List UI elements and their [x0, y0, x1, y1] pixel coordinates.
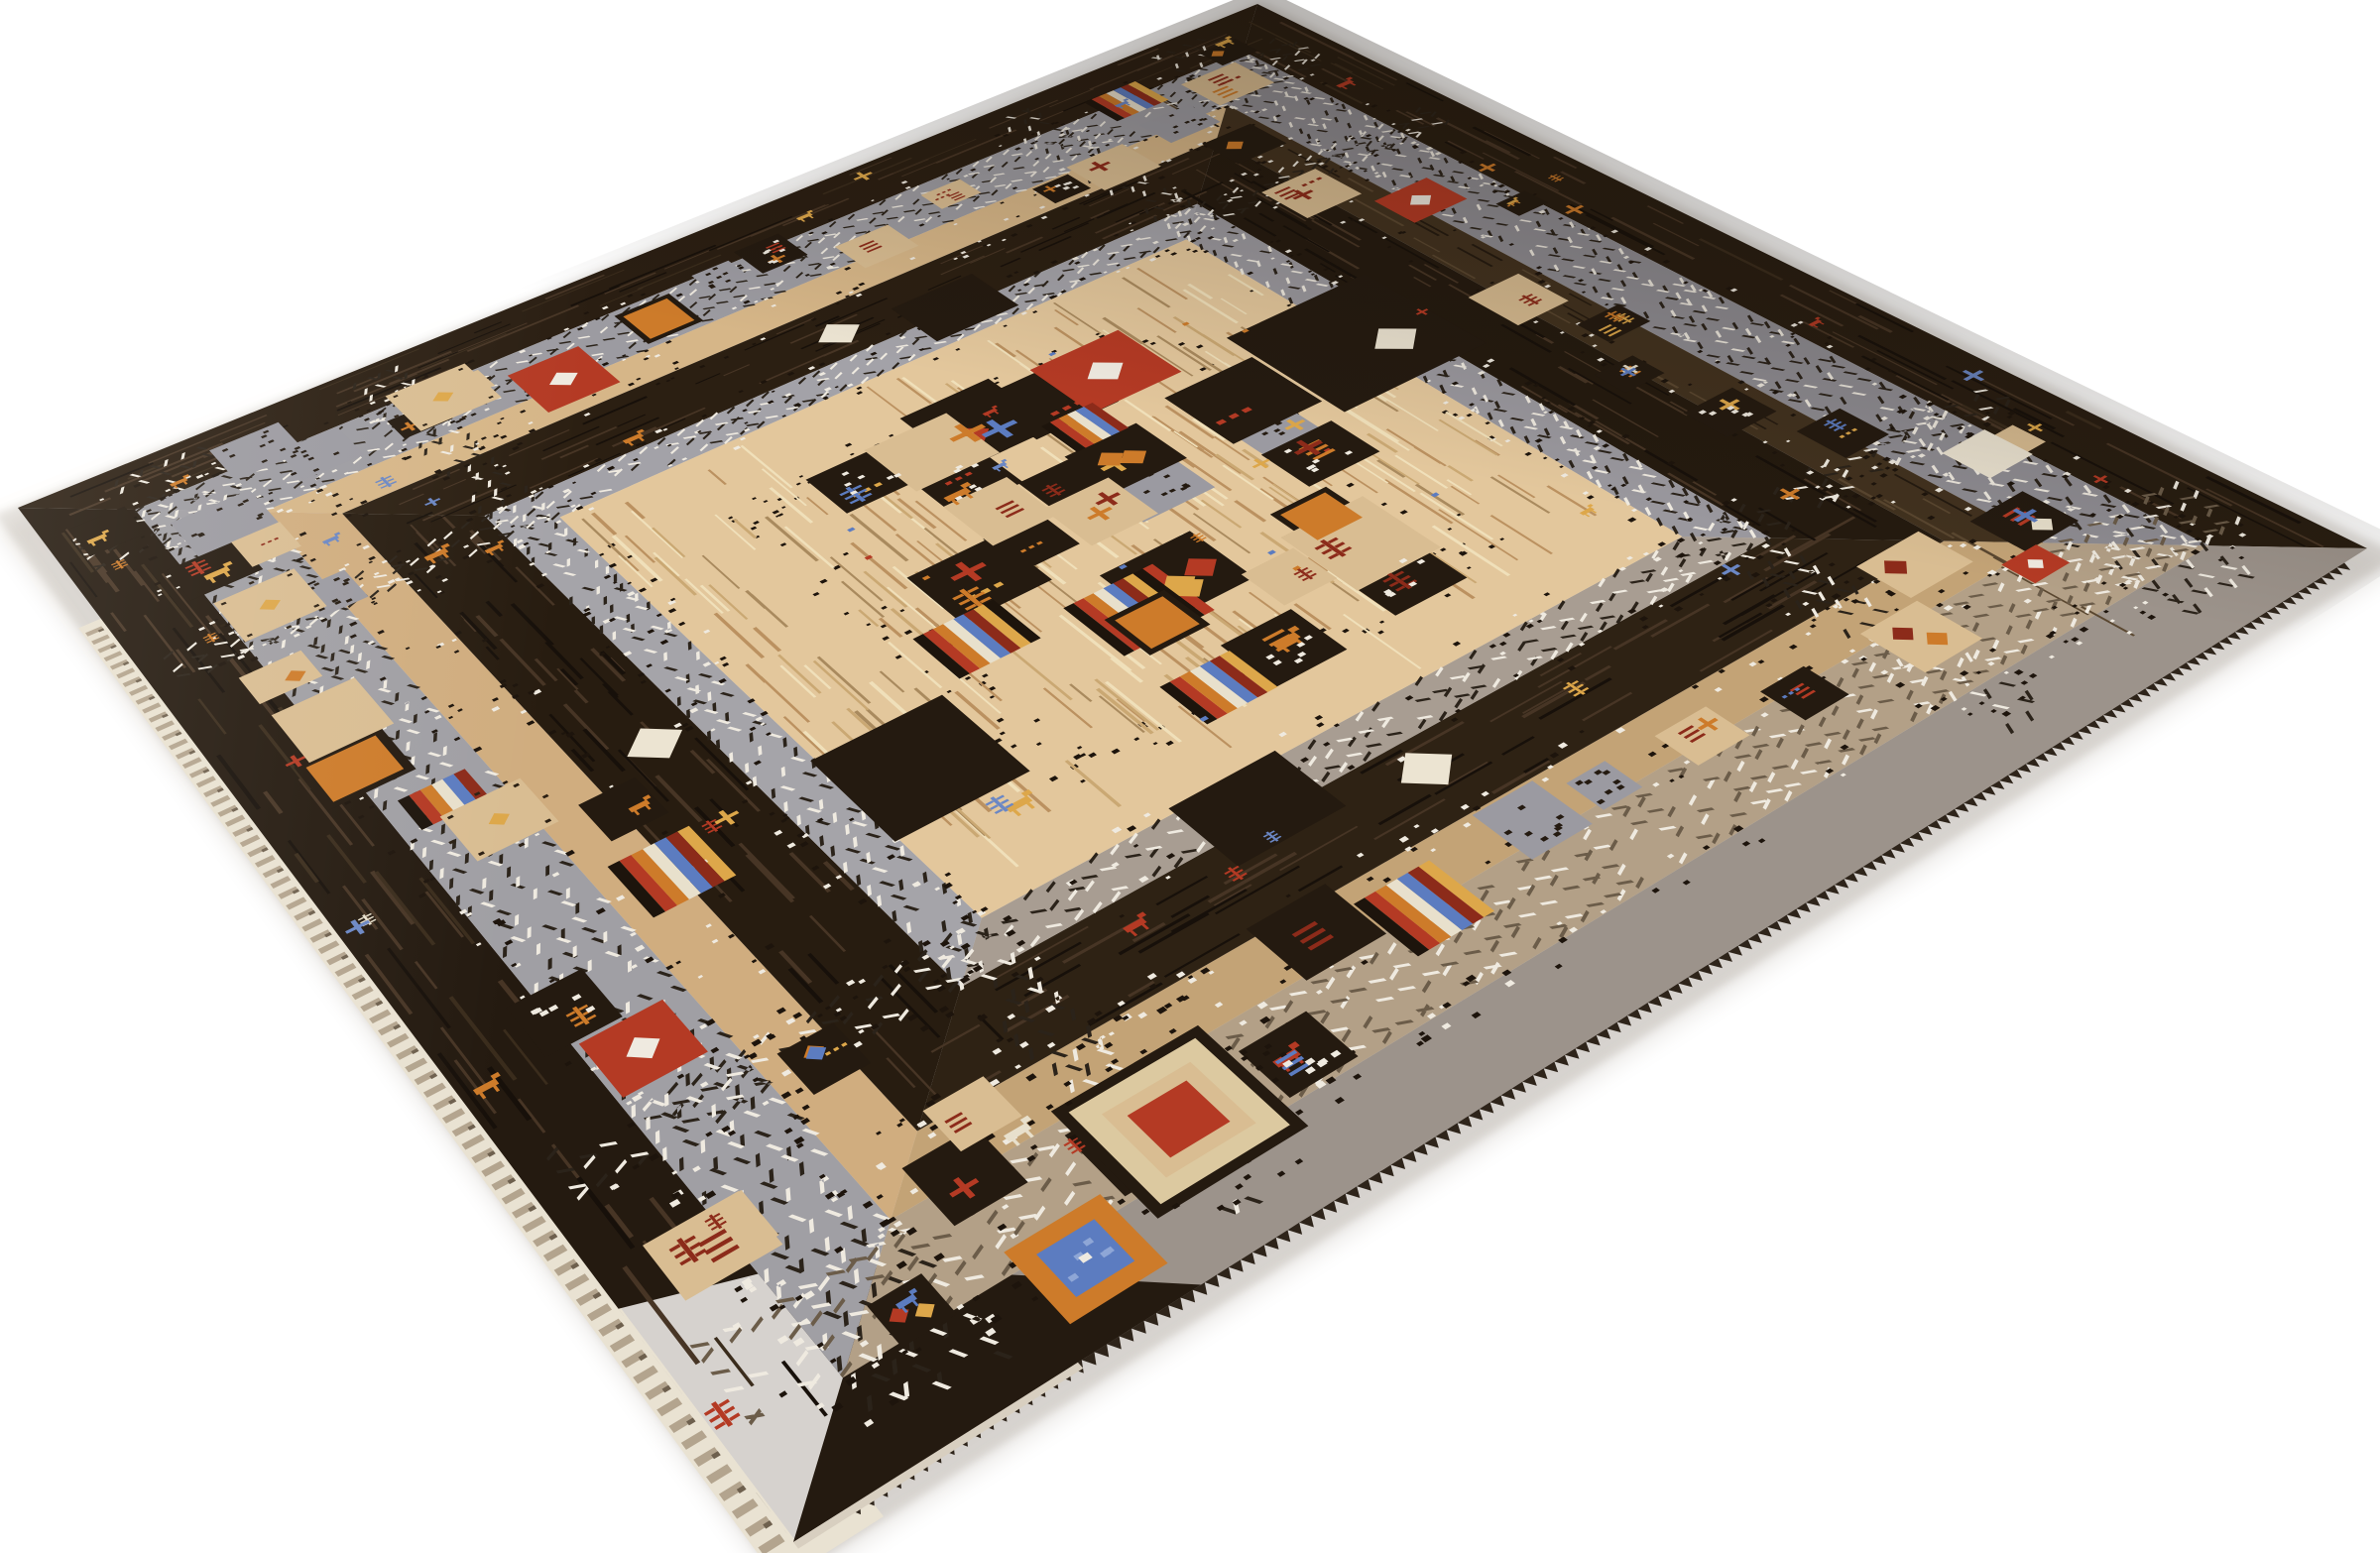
product-photo: Hand-knotted Persian Loribaft Gabbeh pat… — [0, 0, 2380, 1553]
rug-photo — [0, 0, 2380, 1553]
near-highlight — [0, 0, 2380, 1553]
rug-lighting — [0, 0, 2380, 1553]
